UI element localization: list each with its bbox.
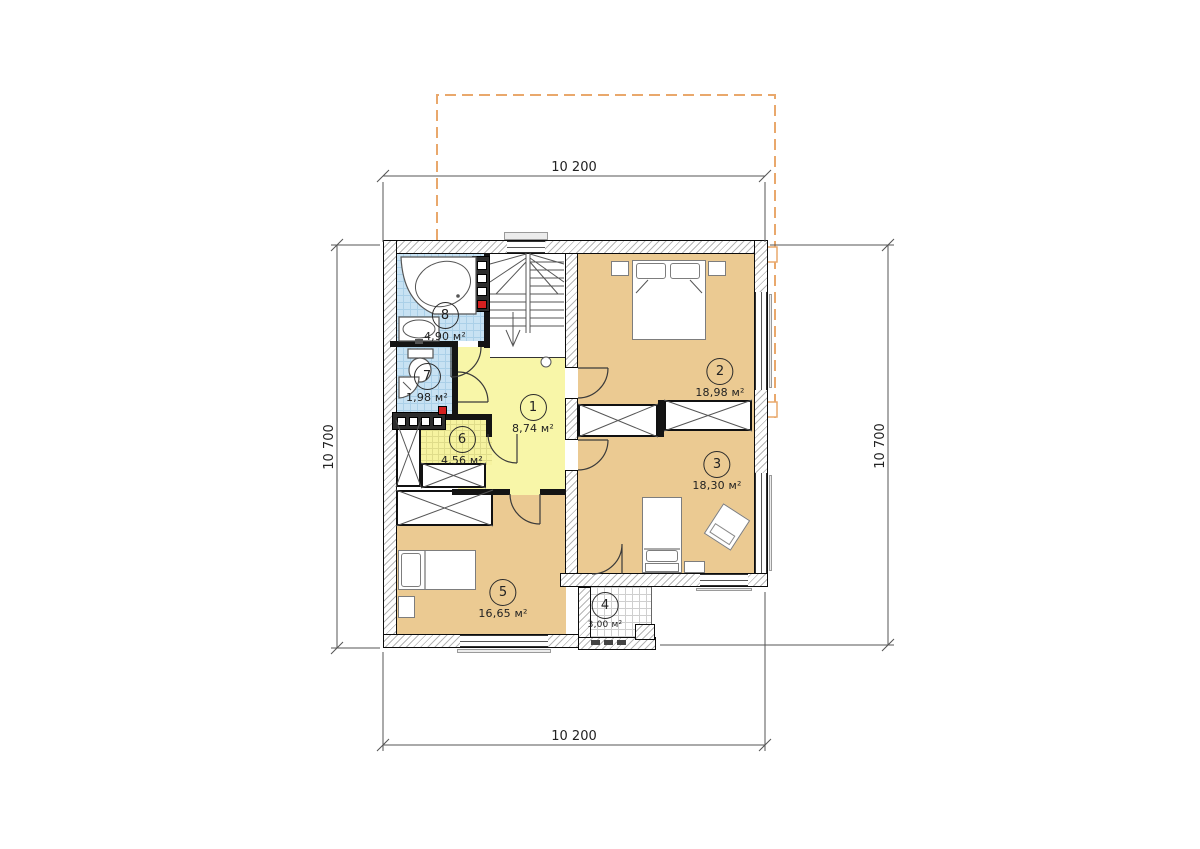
dimension-left-value: 10 700 bbox=[322, 424, 337, 470]
room-number-badge: 5 bbox=[489, 579, 516, 606]
room-label-3: 3 18,30 м² bbox=[692, 451, 741, 492]
room-area-text: 3,00 м² bbox=[588, 620, 623, 630]
door-room5 bbox=[510, 494, 540, 524]
room-number-badge: 7 bbox=[413, 363, 440, 390]
room-label-2: 2 18,98 м² bbox=[695, 358, 744, 399]
dimension-left bbox=[331, 239, 380, 654]
room-number-badge: 2 bbox=[706, 358, 733, 385]
dimension-top bbox=[377, 170, 771, 242]
floor-plan-page: { "plan": { "dimensions": { "top": "10 2… bbox=[0, 0, 1200, 849]
door-room2 bbox=[578, 368, 608, 398]
room-number-badge: 8 bbox=[431, 302, 458, 329]
room-label-5: 5 16,65 м² bbox=[478, 579, 527, 620]
room-area-text: 18,30 м² bbox=[692, 479, 741, 492]
room-number-badge: 1 bbox=[519, 394, 546, 421]
door-room3 bbox=[578, 440, 608, 470]
room-label-1: 1 8,74 м² bbox=[512, 394, 554, 435]
room-label-4: 4 3,00 м² bbox=[588, 592, 623, 630]
door-wardrobe-room bbox=[488, 434, 517, 463]
linework-layer: 10 200 10 200 10 700 10 700 bbox=[0, 0, 1200, 849]
room-area-text: 4,56 м² bbox=[441, 454, 483, 467]
dimension-right bbox=[660, 239, 894, 651]
stairs bbox=[490, 253, 564, 367]
room-area-text: 18,98 м² bbox=[695, 386, 744, 399]
room-area-text: 1,98 м² bbox=[406, 391, 448, 404]
door-wc bbox=[458, 372, 488, 402]
room-number-badge: 6 bbox=[448, 426, 475, 453]
room-area-text: 8,74 м² bbox=[512, 422, 554, 435]
room-label-7: 7 1,98 м² bbox=[406, 363, 448, 404]
dimension-top-value: 10 200 bbox=[551, 160, 597, 175]
room-area-text: 16,65 м² bbox=[478, 607, 527, 620]
door-balcony bbox=[592, 544, 622, 574]
room-area-text: 4,90 м² bbox=[424, 330, 466, 343]
room-label-8: 8 4,90 м² bbox=[424, 302, 466, 343]
dimension-bottom bbox=[377, 592, 771, 751]
room-number-badge: 4 bbox=[591, 592, 618, 619]
dimension-right-value: 10 700 bbox=[873, 423, 888, 469]
dimension-bottom-value: 10 200 bbox=[551, 729, 597, 744]
room-number-badge: 3 bbox=[703, 451, 730, 478]
room-label-6: 6 4,56 м² bbox=[441, 426, 483, 467]
